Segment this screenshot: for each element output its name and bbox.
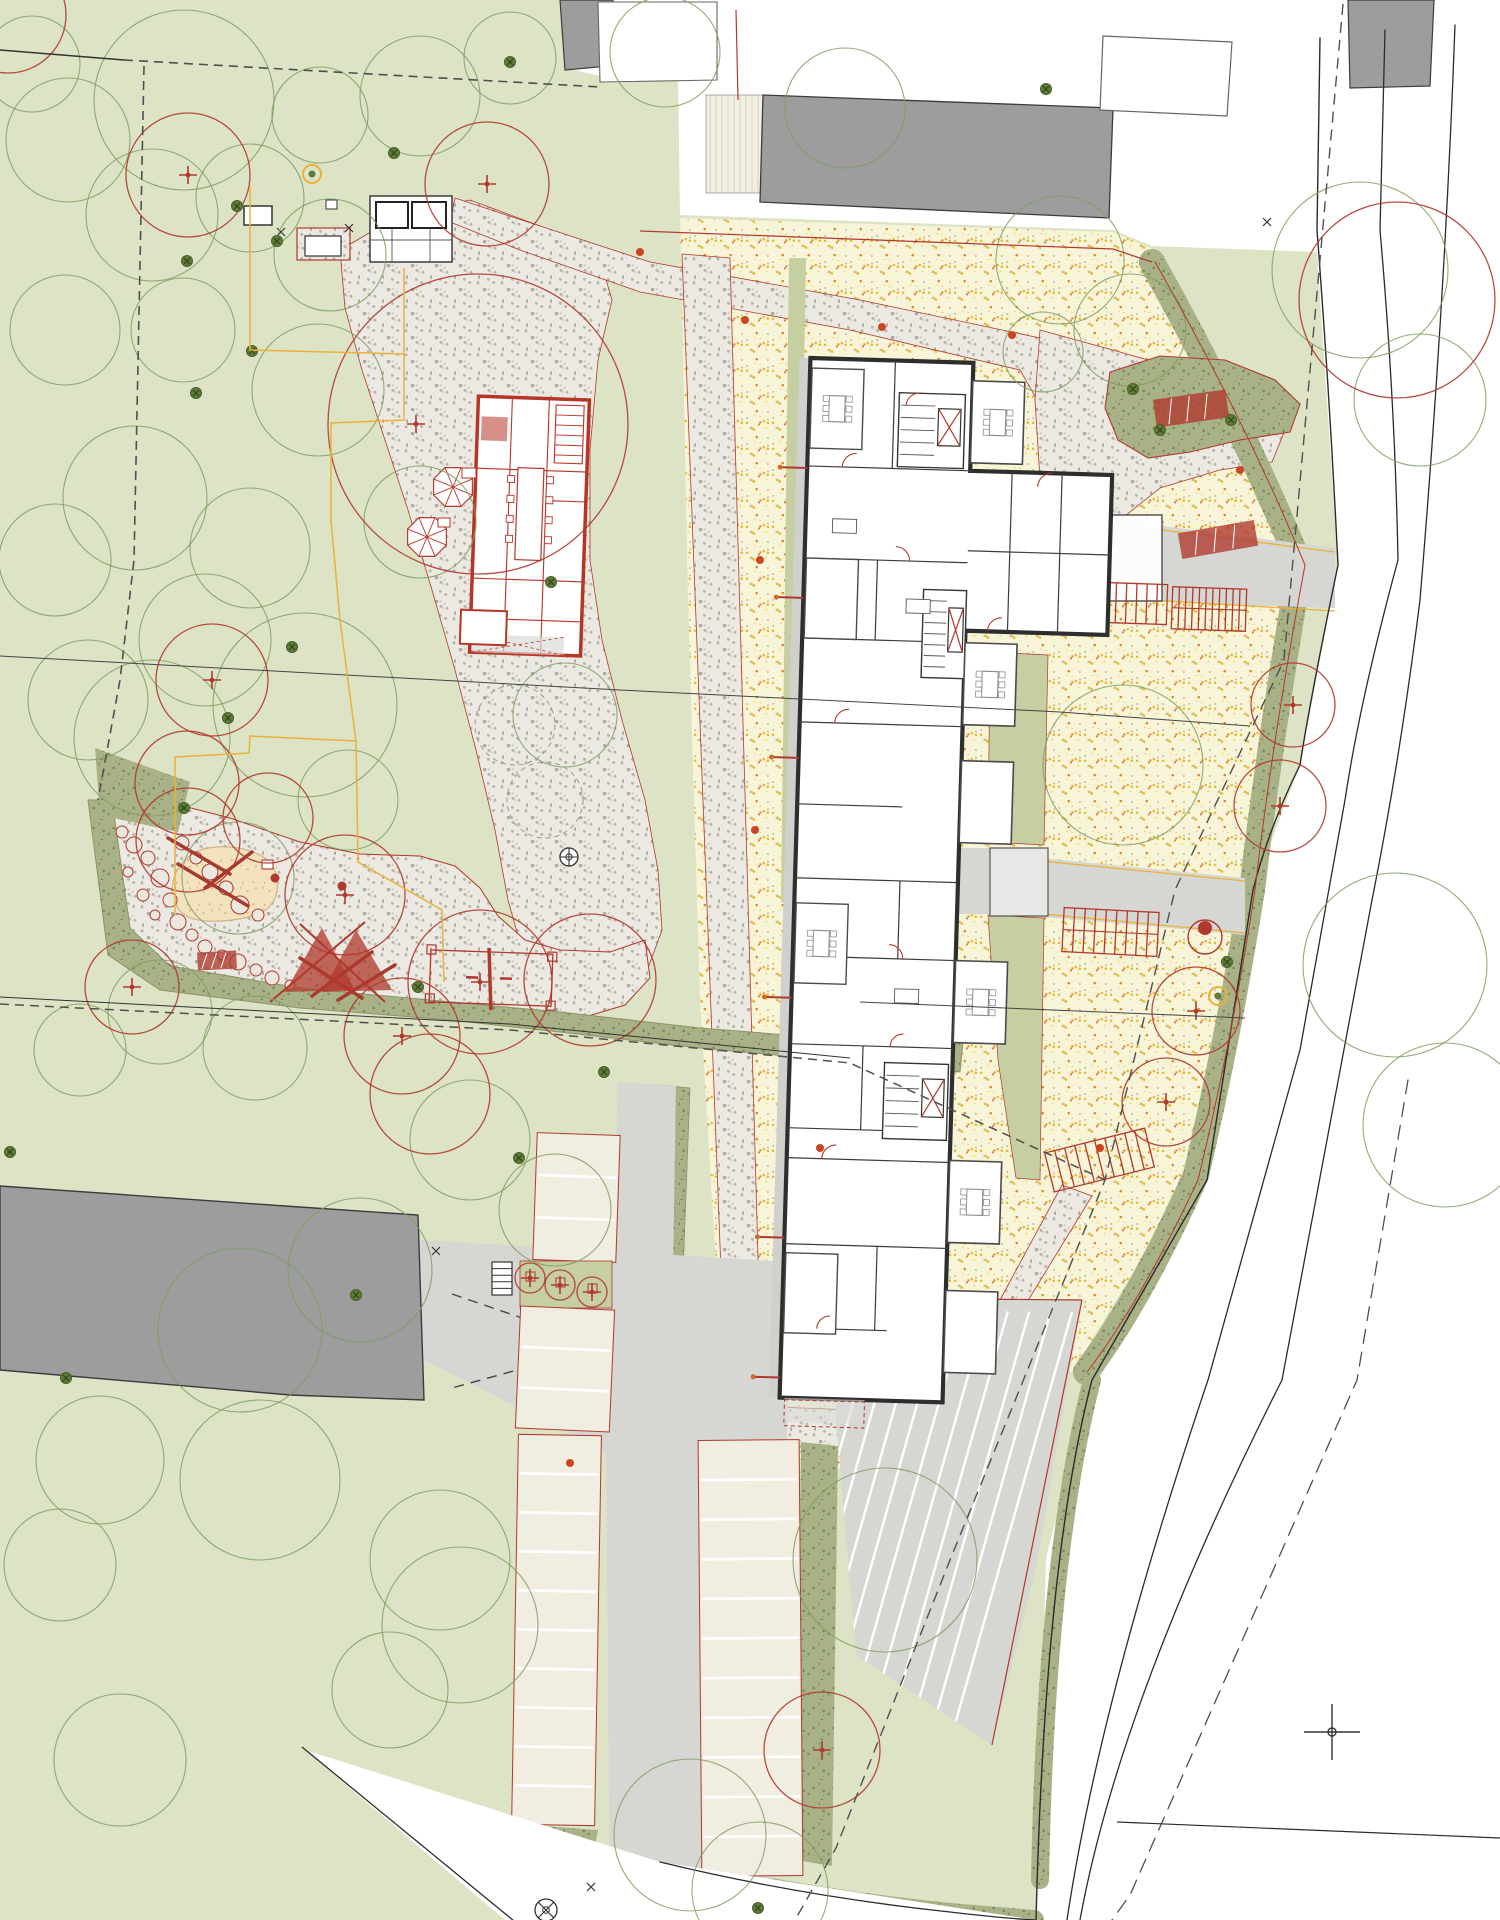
chair [983,429,989,435]
dining-set [807,930,837,957]
chair [830,931,836,937]
chair [966,1009,972,1015]
table [813,930,830,956]
path-marker-dot [636,248,644,256]
playground-bench [198,951,237,970]
table [989,409,1006,435]
red-building-chairs [507,475,514,482]
tree-target [414,422,419,427]
dining-set [823,395,853,422]
boulder [150,910,160,920]
wintergarden-west [804,558,858,640]
chair [966,999,972,1005]
path-marker-dot [741,316,749,324]
chair [975,691,981,697]
boulder [186,929,198,941]
tree-target [1278,804,1283,809]
table [981,671,998,697]
shed-small [244,206,272,225]
chair [846,396,852,402]
boulder [116,826,128,838]
neighbor-yard-hatch [706,95,763,193]
stall-stripe [520,1473,599,1474]
stair-tread [924,634,946,635]
chair [823,395,829,401]
play-table [262,860,273,869]
path-marker-dot [566,1459,574,1467]
path-marker-dot [816,1144,824,1152]
tree-target [820,1748,825,1753]
red-building-table [515,468,544,561]
stall-stripe [702,1677,799,1678]
stair-tread [925,623,947,624]
chair [984,409,990,415]
stalls-col-a [533,1133,620,1263]
stall-stripe [701,1519,798,1520]
chair [1006,430,1012,436]
service-ticks [766,997,791,998]
service-ticks [778,597,803,598]
stall-stripe [700,1479,797,1480]
chair [976,681,982,687]
chair [807,940,813,946]
stall-stripe [519,1512,598,1513]
path-marker-dot [878,323,886,331]
terrace-table [462,468,476,478]
chair [983,1210,989,1216]
boulder [252,909,264,921]
tree-target [528,1276,533,1281]
dining-set [983,409,1013,436]
tree-to-remove [1215,993,1222,1000]
stall-stripe [703,1796,800,1797]
chair [984,1190,990,1196]
chair [1007,420,1013,426]
stalls-col-c [698,1440,803,1877]
boulder [123,867,133,877]
wintergarden-west [784,1253,838,1335]
tree-target [186,173,191,178]
stall-stripe [514,1785,593,1786]
stair-tread [923,666,945,667]
chair [989,1000,995,1006]
stall-stripe [703,1757,800,1758]
chair [976,671,982,677]
chair [998,692,1004,698]
stall-stripe [703,1717,800,1718]
stall-stripe [518,1551,597,1552]
manhole-cover [535,1899,557,1920]
entry-canopy-south [990,848,1048,916]
path-marker-dot [756,556,764,564]
chair [960,1199,966,1205]
utility-box [326,200,337,209]
boulder [250,964,262,976]
stall-stripe [701,1558,798,1559]
chair [999,682,1005,688]
chair [990,990,996,996]
spring-toy [271,874,280,883]
chair [999,672,1005,678]
table [972,989,989,1015]
shed-bin-roof [305,236,341,256]
stalls-col-a2 [515,1306,614,1432]
stalls-col-c [698,1440,803,1877]
service-ticks [782,467,807,468]
stalls-col-a [533,1133,620,1263]
stair-tread [924,644,946,645]
chair [823,415,829,421]
chair [983,1200,989,1206]
neighbor-building-tr [1348,0,1434,88]
path-marker-dot [751,826,759,834]
tree-target [210,678,215,683]
chair [960,1209,966,1215]
path-marker-dot [1008,331,1016,339]
dining-set [960,1189,990,1216]
stall-stripe [517,1629,596,1630]
stalls-col-a2 [515,1306,614,1432]
site-plan [0,0,1500,1920]
wintergarden-east [943,1290,997,1374]
stall-stripe [515,1746,594,1747]
planter-tree [1198,921,1212,935]
red-building-chairs [546,497,553,504]
red-building-chairs [545,517,552,524]
neighbor-building-nw [598,2,717,82]
tree-to-remove [309,171,316,178]
red-building [460,396,590,656]
kitchen-unit [906,599,930,614]
red-building-chairs [544,537,551,544]
service-ticks [755,1377,780,1378]
tree-target [343,893,348,898]
tree-target [590,1290,595,1295]
table [829,396,846,422]
chair [984,419,990,425]
chair [823,405,829,411]
tree-target [478,980,483,985]
chair [846,416,852,422]
boulder [126,837,142,853]
red-building-chairs [506,515,513,522]
path-marker-dot [1236,466,1244,474]
stall-stripe [516,1707,595,1708]
service-ticks [774,757,799,758]
chair [967,989,973,995]
service-ticks [759,1237,784,1238]
red-building-chairs [505,535,512,542]
manhole-cover [560,848,578,866]
stall-stripe [702,1638,799,1639]
playground-bench [198,951,237,970]
tree-target [1164,1100,1169,1105]
chair [807,950,813,956]
chair [807,930,813,936]
stair-core [882,1063,948,1141]
stair-tread [924,655,946,656]
tree-target [1194,1009,1199,1014]
tree-target [485,182,490,187]
chair [830,951,836,957]
tree-target [130,985,135,990]
terrace-table [438,518,450,527]
table [966,1189,983,1215]
stair-core [897,393,965,469]
stairs-to-plaza [492,1262,512,1295]
kitchen-unit [894,989,918,1004]
stairs-to-plaza [492,1262,512,1295]
site-plan-canvas [0,0,1500,1920]
red-building-chairs [546,477,553,484]
terrace-south [784,1398,865,1424]
boulder [265,971,279,985]
chair [961,1189,967,1195]
path-marker-dot [1096,1144,1104,1152]
pergola-table [376,202,408,228]
boulder [170,914,186,930]
chair [1007,410,1013,416]
chair [989,1010,995,1016]
red-building-annex [460,610,507,646]
tree-target [400,1034,405,1039]
stall-stripe [701,1598,798,1599]
stall-stripe [516,1668,595,1669]
boulder [137,889,149,901]
chair [846,406,852,412]
stalls-col-b [512,1434,602,1825]
dining-set [975,671,1005,698]
wintergarden-east [959,761,1013,845]
boulder [141,851,155,865]
tree-target [558,1283,563,1288]
chair [830,941,836,947]
tree-target [1291,703,1296,708]
neighbor-building-ne [1100,36,1232,116]
dining-set [966,989,996,1016]
entry-porch-south [958,848,992,914]
red-building-chairs [507,495,514,502]
kitchen-unit [832,519,856,534]
red-building-kitchen [481,416,508,441]
neighbor-building-long [760,95,1113,218]
